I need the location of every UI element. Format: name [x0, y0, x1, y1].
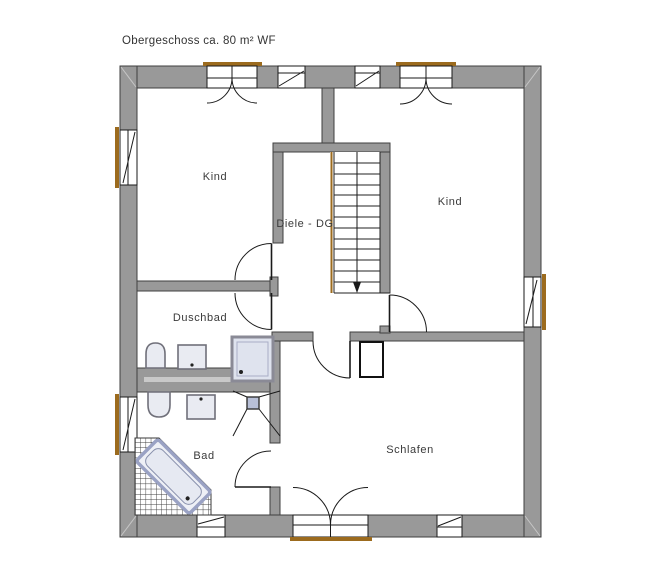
chimney-shaft: [360, 342, 383, 377]
floorplan-page: Obergeschoss ca. 80 m² WF: [0, 0, 670, 583]
wall-kind-schlafen: [350, 332, 524, 341]
shower: [232, 337, 273, 381]
wall-kind-duschbad: [137, 281, 270, 291]
wall-diele-schlafen-left: [272, 332, 313, 341]
door-duschbad: [235, 293, 272, 330]
room-label-duschbad: Duschbad: [173, 312, 227, 324]
door-schlafen: [313, 341, 350, 378]
room-label-schlafen: Schlafen: [386, 444, 434, 456]
toilet: [148, 392, 170, 417]
window-casement: [203, 62, 262, 103]
door-kind-left: [235, 244, 272, 281]
window-tilt: [524, 274, 546, 330]
floorplan-drawing: Obergeschoss ca. 80 m² WF: [0, 0, 670, 583]
room-labels: Kind Kind Diele - DG Duschbad Bad Schlaf…: [173, 171, 462, 462]
toilet: [146, 343, 165, 368]
wall-door-stop: [380, 326, 390, 333]
fixtures: [135, 337, 280, 515]
wall-stair-top: [273, 143, 390, 152]
window-tilt: [115, 127, 137, 188]
door-bad: [235, 451, 271, 487]
wall-stair-right: [380, 152, 390, 293]
wall-niche-stripe: [144, 377, 232, 382]
room-label-bad: Bad: [193, 450, 214, 462]
room-label-kind-left: Kind: [203, 171, 227, 183]
window-french-door: [290, 488, 372, 542]
door-kind-right: [390, 295, 427, 332]
window-tilt: [278, 66, 305, 88]
window-casement: [396, 62, 456, 104]
window-tilt: [355, 66, 380, 88]
plan-title: Obergeschoss ca. 80 m² WF: [122, 35, 276, 47]
window-tilt: [437, 515, 462, 537]
window-tilt: [115, 394, 137, 455]
room-label-diele: Diele - DG: [276, 218, 333, 230]
wall-bad-schlafen-lower: [270, 487, 280, 515]
window-tilt: [197, 515, 225, 537]
room-label-kind-right: Kind: [438, 196, 462, 208]
wall-kind-divider: [322, 88, 334, 152]
